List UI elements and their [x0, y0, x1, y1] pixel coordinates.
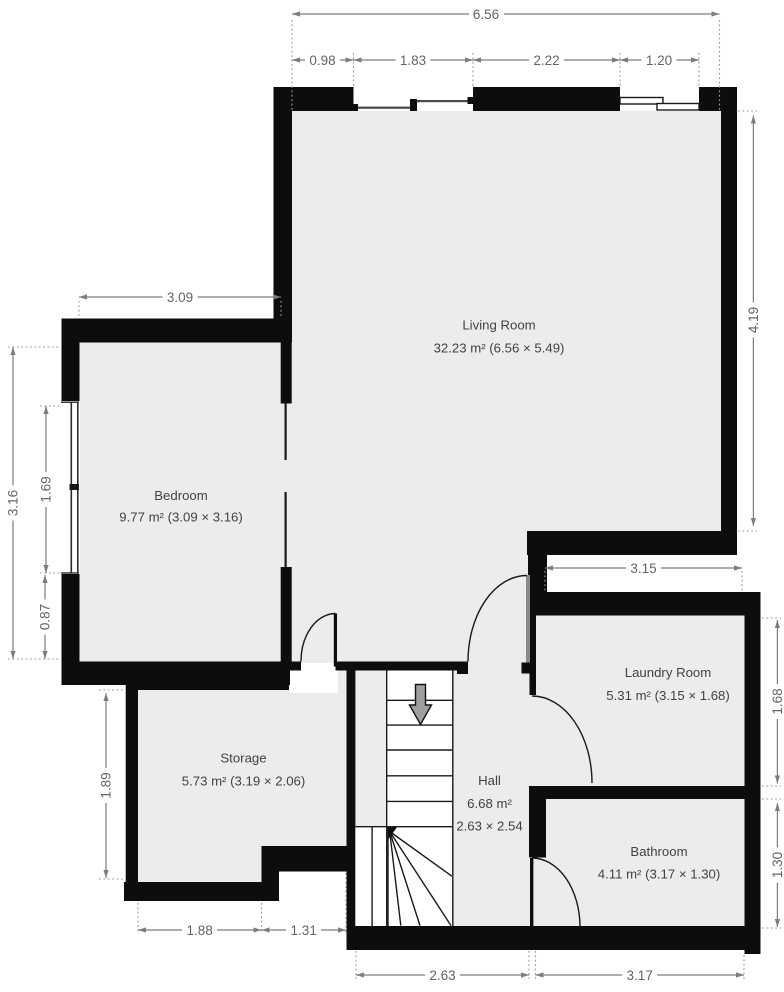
svg-text:3.09: 3.09	[167, 290, 193, 305]
svg-text:3.17: 3.17	[627, 968, 653, 983]
svg-text:3.16: 3.16	[6, 490, 21, 516]
svg-text:0.87: 0.87	[38, 604, 53, 630]
svg-text:6.68 m²: 6.68 m²	[467, 796, 512, 811]
svg-text:Bedroom: Bedroom	[154, 488, 208, 503]
svg-text:1.68: 1.68	[770, 688, 784, 714]
svg-text:9.77 m² (3.09 × 3.16): 9.77 m² (3.09 × 3.16)	[119, 510, 243, 525]
svg-text:4.19: 4.19	[746, 307, 761, 333]
svg-text:Living Room: Living Room	[462, 318, 535, 333]
svg-text:2.63: 2.63	[429, 968, 455, 983]
svg-text:5.73 m² (3.19 × 2.06): 5.73 m² (3.19 × 2.06)	[182, 774, 306, 789]
svg-text:1.20: 1.20	[646, 53, 672, 68]
svg-text:1.83: 1.83	[400, 53, 426, 68]
svg-text:2.63 × 2.54: 2.63 × 2.54	[456, 819, 522, 834]
svg-text:2.22: 2.22	[533, 53, 559, 68]
svg-text:1.31: 1.31	[291, 923, 317, 938]
svg-text:1.30: 1.30	[770, 852, 784, 878]
svg-text:4.11 m² (3.17 × 1.30): 4.11 m² (3.17 × 1.30)	[598, 867, 721, 882]
svg-text:1.88: 1.88	[187, 923, 213, 938]
svg-text:32.23 m² (6.56 × 5.49): 32.23 m² (6.56 × 5.49)	[434, 341, 565, 356]
svg-text:1.69: 1.69	[39, 476, 54, 502]
svg-text:Hall: Hall	[478, 773, 501, 788]
svg-text:1.89: 1.89	[99, 772, 114, 798]
svg-text:3.15: 3.15	[630, 561, 656, 576]
svg-text:Storage: Storage	[220, 751, 266, 766]
svg-text:Laundry Room: Laundry Room	[625, 665, 712, 680]
svg-text:0.98: 0.98	[309, 53, 335, 68]
svg-text:5.31 m² (3.15 × 1.68): 5.31 m² (3.15 × 1.68)	[606, 688, 730, 703]
svg-text:6.56: 6.56	[473, 7, 499, 22]
svg-text:Bathroom: Bathroom	[630, 844, 687, 859]
